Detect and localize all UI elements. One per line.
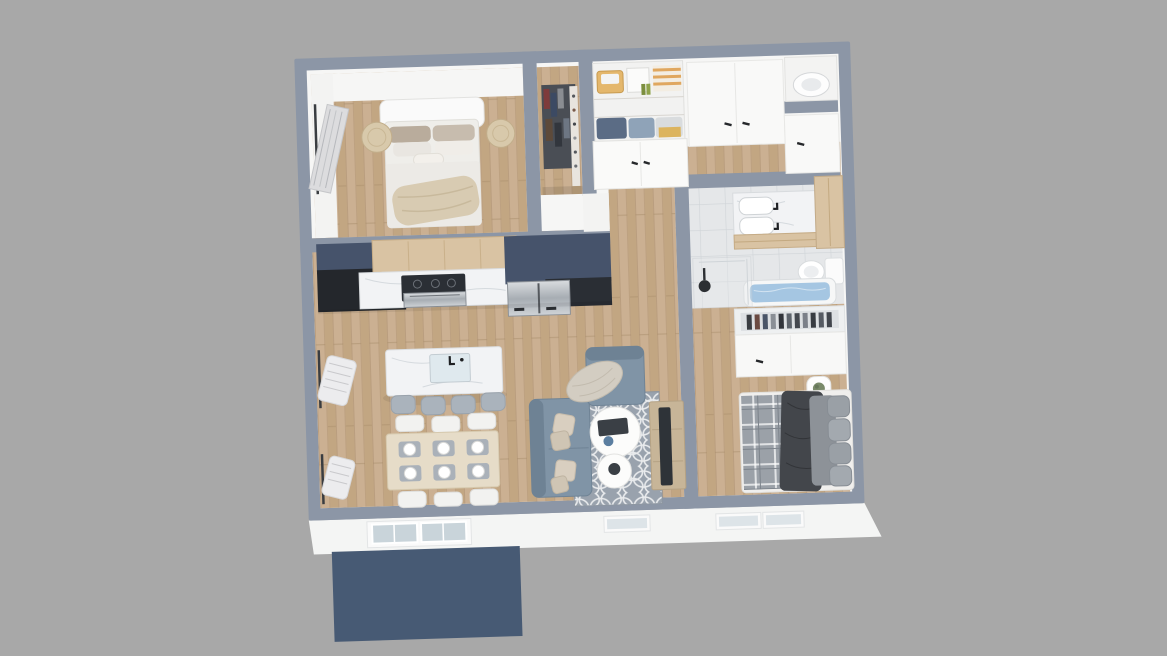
coffee-table-small — [597, 453, 632, 488]
folded-navy-linens — [596, 117, 627, 139]
dining-chair — [470, 489, 498, 506]
place-setting — [399, 465, 421, 482]
bedroom-2 — [734, 306, 854, 495]
range-stove — [401, 274, 466, 308]
closet-doors — [735, 332, 846, 377]
facade-window — [716, 512, 761, 529]
bar-stool — [451, 395, 476, 414]
sofa-pillow — [550, 475, 569, 494]
closet-opening-shadow — [542, 186, 582, 195]
place-setting — [432, 440, 454, 457]
tv-console — [649, 401, 686, 490]
place-setting — [467, 463, 489, 480]
appliance-niche — [784, 56, 837, 102]
bar-stool — [481, 392, 506, 411]
basin — [740, 217, 775, 235]
kitchen-counter — [359, 268, 512, 309]
bar-stool — [391, 395, 416, 414]
storage-closet — [591, 61, 689, 190]
corridor-floor — [608, 185, 675, 231]
dining-set — [386, 413, 501, 508]
pillow — [388, 126, 430, 143]
facade-window — [604, 515, 650, 532]
hall-closet-doors — [687, 60, 786, 147]
rattan-pouf — [486, 119, 515, 148]
pillow — [829, 466, 852, 487]
shelf-basket — [597, 71, 624, 94]
rattan-pouf — [361, 122, 392, 153]
shelf-white-box — [627, 68, 650, 93]
tall-cabinet — [814, 176, 844, 249]
dining-chair — [398, 491, 426, 508]
basin — [739, 197, 774, 215]
vanity — [733, 191, 817, 250]
bar-stool — [421, 396, 446, 415]
pillow — [827, 396, 850, 418]
kitchen-island — [385, 346, 502, 396]
hanging-clothes-row — [747, 312, 832, 330]
dining-chair — [468, 413, 496, 430]
green-bottles — [646, 84, 650, 95]
sofa-pillow — [550, 430, 571, 451]
kitchen-navy-tall-block — [504, 233, 611, 284]
porch-slab — [332, 546, 523, 642]
bedroom2-closet — [734, 306, 846, 377]
tan-box — [659, 127, 681, 138]
bed-1 — [384, 119, 482, 228]
floor-plan-render — [0, 0, 1167, 656]
glass-shower — [693, 257, 753, 309]
place-setting — [433, 464, 455, 481]
dining-chair — [432, 416, 460, 433]
sofa — [529, 398, 592, 498]
pillow — [829, 443, 852, 465]
wall-niche-bottom — [784, 100, 838, 114]
tv-screen — [658, 407, 672, 485]
bathtub — [743, 278, 836, 307]
place-setting — [398, 441, 420, 458]
wallface-below-closet — [583, 193, 610, 232]
kitchen — [316, 233, 612, 322]
bed-2 — [739, 389, 854, 495]
dining-chair — [434, 492, 462, 507]
green-bottles — [641, 84, 645, 95]
facade-window — [763, 511, 804, 528]
pillow — [432, 124, 474, 141]
pillow — [435, 140, 473, 155]
striped-towels — [653, 65, 682, 92]
bath-water — [750, 282, 831, 303]
dining-chair — [396, 415, 424, 432]
dark-tray — [597, 418, 628, 437]
entry-door — [367, 519, 472, 548]
folded-blue-linens — [628, 118, 655, 139]
oven-front — [404, 292, 466, 308]
refrigerator — [507, 280, 570, 316]
hall-closet-right — [784, 114, 840, 174]
place-setting — [466, 439, 488, 456]
storage-doors — [593, 139, 688, 190]
pillow — [828, 419, 851, 442]
